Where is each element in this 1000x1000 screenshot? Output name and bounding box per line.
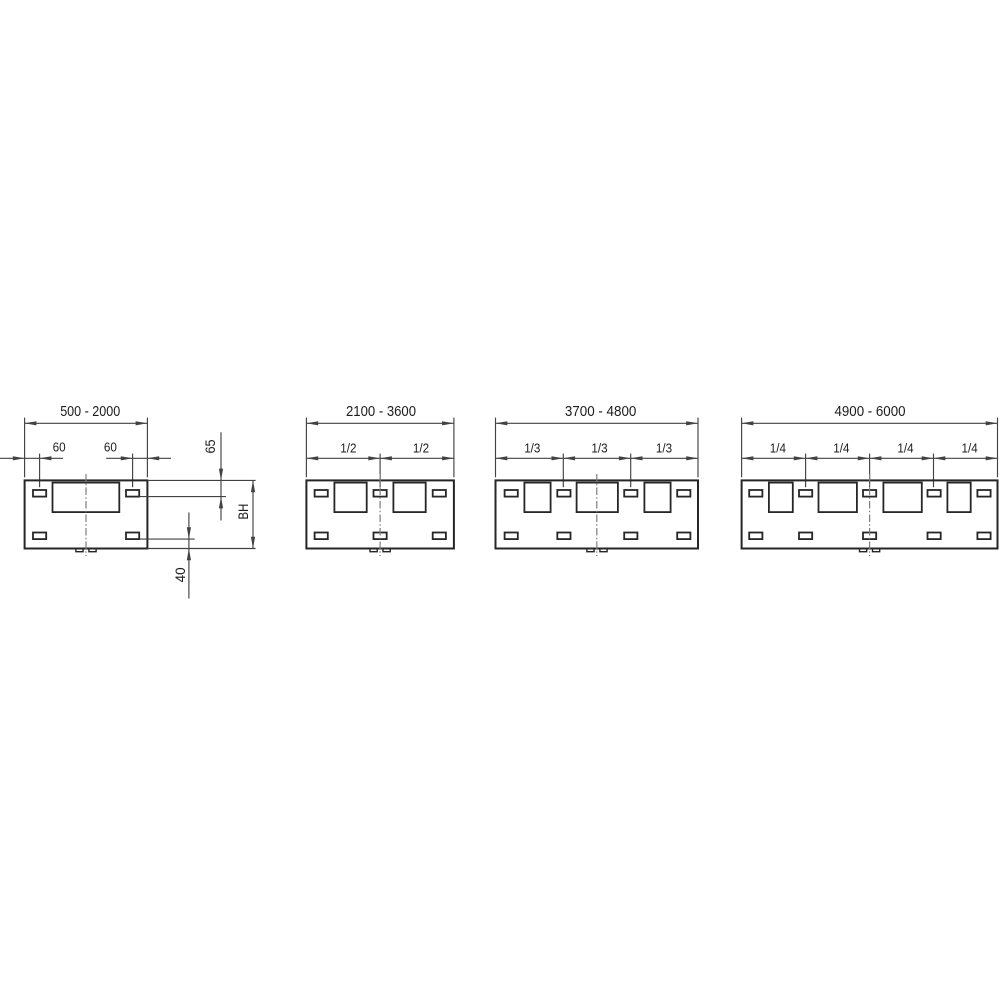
svg-text:500 - 2000: 500 - 2000 [60, 404, 120, 420]
svg-text:40: 40 [172, 567, 188, 582]
svg-text:4900 - 6000: 4900 - 6000 [835, 404, 906, 420]
svg-text:1/4: 1/4 [770, 441, 786, 456]
svg-text:1/3: 1/3 [524, 441, 540, 456]
svg-text:60: 60 [104, 439, 117, 454]
svg-text:1/3: 1/3 [656, 441, 672, 456]
svg-text:1/2: 1/2 [340, 441, 356, 456]
svg-text:BH: BH [235, 504, 251, 520]
svg-text:2100 - 3600: 2100 - 3600 [346, 404, 416, 420]
svg-text:3700 - 4800: 3700 - 4800 [565, 404, 637, 420]
svg-text:1/4: 1/4 [962, 441, 978, 456]
svg-text:1/2: 1/2 [413, 441, 429, 456]
svg-text:65: 65 [202, 439, 218, 453]
svg-text:1/3: 1/3 [591, 441, 607, 456]
svg-text:1/4: 1/4 [833, 441, 849, 456]
svg-text:1/4: 1/4 [897, 441, 913, 456]
svg-text:60: 60 [53, 439, 66, 454]
